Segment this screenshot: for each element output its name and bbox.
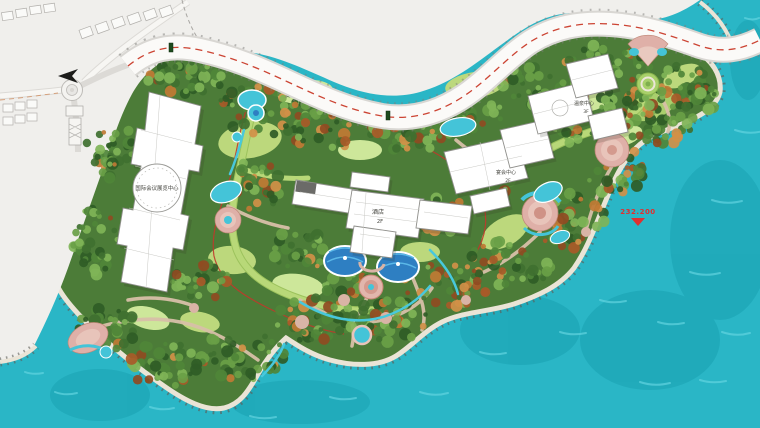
hotel-label: 酒店 xyxy=(372,208,384,216)
conference-center-label: 国际会议展览中心 xyxy=(135,184,179,192)
hotel-floors-label: 2F xyxy=(377,219,383,225)
banquet-floors-label: 2F xyxy=(505,178,511,184)
masterplan-canvas: 国际会议展览中心 酒店 2F xyxy=(0,0,760,428)
banquet-center-label: 宴会中心 xyxy=(496,169,516,176)
site-plan-svg: 国际会议展览中心 酒店 2F xyxy=(0,0,760,428)
round-pool-south xyxy=(353,326,371,344)
spa-floors-label: 3F xyxy=(583,109,589,115)
context-roundabout xyxy=(62,80,83,101)
water-elevation-label: 232.200 xyxy=(620,208,655,216)
road-sign-icon xyxy=(169,43,173,52)
flower-plaza xyxy=(215,207,241,233)
spa-center-label: 温泉中心 xyxy=(574,100,594,107)
road-sign-icon xyxy=(386,111,390,120)
